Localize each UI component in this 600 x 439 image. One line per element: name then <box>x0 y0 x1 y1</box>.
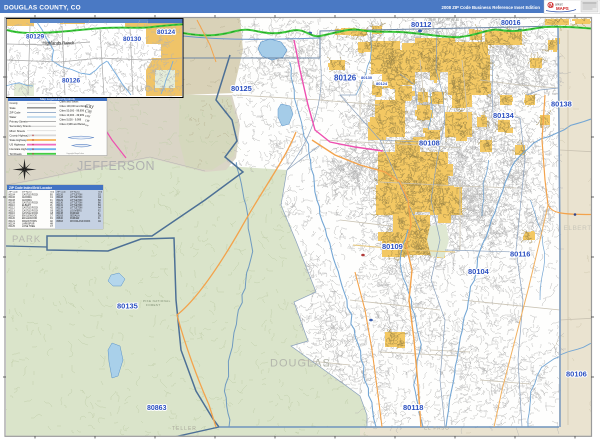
svg-text:City: City <box>85 108 92 113</box>
svg-text:80124: 80124 <box>376 81 388 86</box>
svg-text:Copyright MapsOnline: Copyright MapsOnline <box>66 152 84 155</box>
svg-text:MAPS: MAPS <box>556 6 569 11</box>
svg-text:80116: 80116 <box>510 250 530 259</box>
svg-text:CASTLE ROCK: CASTLE ROCK <box>22 194 39 197</box>
svg-text:City: City <box>85 124 89 127</box>
svg-text:Cities 10,000 - 49,999: Cities 10,000 - 49,999 <box>60 114 85 117</box>
svg-text:PARK: PARK <box>12 234 41 245</box>
svg-text:SEDALIA: SEDALIA <box>70 215 80 218</box>
svg-text:ZIP Name: ZIP Name <box>22 192 33 194</box>
svg-text:80108: 80108 <box>419 139 440 148</box>
svg-text:CASTLE ROCK: CASTLE ROCK <box>22 202 39 205</box>
svg-text:CASTLE ROCK: CASTLE ROCK <box>22 207 39 210</box>
svg-text:Toll Roads: Toll Roads <box>10 152 23 156</box>
svg-text:FRANKTOWN: FRANKTOWN <box>22 220 37 223</box>
svg-text:EL PASO: EL PASO <box>424 426 450 432</box>
svg-text:State Highways: State Highways <box>10 138 29 142</box>
svg-text:80126: 80126 <box>62 78 80 85</box>
svg-text:80129: 80129 <box>26 34 44 41</box>
svg-text:80130: 80130 <box>361 75 373 80</box>
svg-text:City: City <box>85 119 90 122</box>
svg-text:DOUGLAS: DOUGLAS <box>119 84 176 94</box>
svg-text:TELLER: TELLER <box>172 426 197 432</box>
svg-text:DOUGLAS COUNTY, CO: DOUGLAS COUNTY, CO <box>4 5 81 12</box>
svg-text:E..: E.. <box>98 213 101 215</box>
svg-text:80016: 80016 <box>501 20 521 27</box>
svg-text:80108: 80108 <box>9 200 16 202</box>
svg-text:ELBERT: ELBERT <box>564 225 592 232</box>
svg-text:80104: 80104 <box>468 267 490 276</box>
svg-text:ZIP Code: ZIP Code <box>10 110 21 114</box>
svg-text:ZIP Code: ZIP Code <box>57 192 67 194</box>
svg-text:JEFFERSON: JEFFERSON <box>77 159 155 173</box>
svg-text:80130: 80130 <box>123 36 141 43</box>
svg-text:ZIP Name: ZIP Name <box>70 192 81 194</box>
svg-text:80124: 80124 <box>157 29 175 36</box>
svg-text:80125: 80125 <box>231 84 252 93</box>
svg-text:Cities and Towns: Cities and Towns <box>60 101 80 104</box>
svg-text:Cities 50,000 - 99,999: Cities 50,000 - 99,999 <box>60 110 85 113</box>
svg-text:Water: Water <box>10 115 17 119</box>
svg-text:City: City <box>85 114 91 118</box>
svg-text:80863: 80863 <box>147 405 167 412</box>
svg-text:ZIP Code Index/Grid Locator: ZIP Code Index/Grid Locator <box>9 186 53 190</box>
svg-text:Cities 2,999 and Below: Cities 2,999 and Below <box>60 123 86 126</box>
svg-text:LITTLETON: LITTLETON <box>70 200 83 202</box>
svg-text:80138: 80138 <box>57 213 64 215</box>
svg-text:80118: 80118 <box>403 403 423 412</box>
svg-text:DOUGLAS: DOUGLAS <box>270 358 331 370</box>
svg-text:PARKER: PARKER <box>70 217 80 220</box>
svg-text:80126: 80126 <box>334 74 357 83</box>
svg-text:AURORA: AURORA <box>22 196 32 199</box>
svg-text:80135: 80135 <box>117 302 138 311</box>
svg-text:FOREST: FOREST <box>146 303 161 307</box>
svg-text:80106: 80106 <box>566 370 587 379</box>
svg-text:80134: 80134 <box>493 111 515 120</box>
svg-text:PARKER: PARKER <box>70 212 80 215</box>
svg-text:County: County <box>10 101 19 105</box>
svg-text:Highlands Ranch: Highlands Ranch <box>43 41 76 46</box>
svg-text:Primary Streets: Primary Streets <box>10 120 29 124</box>
svg-text:80863: 80863 <box>57 221 64 223</box>
svg-text:CASTLE ROCK: CASTLE ROCK <box>22 209 39 212</box>
svg-text:US Highways: US Highways <box>10 143 26 147</box>
svg-text:2008 ZIP Code Business Referen: 2008 ZIP Code Business Reference Inset E… <box>441 5 540 10</box>
svg-text:State: State <box>10 106 17 110</box>
svg-text:LARKSPUR: LARKSPUR <box>22 222 35 225</box>
svg-text:80125: 80125 <box>9 226 16 228</box>
svg-text:LONE TREE: LONE TREE <box>22 226 35 228</box>
svg-text:80116: 80116 <box>9 213 16 215</box>
svg-text:Cities 5,000 - 9,999: Cities 5,000 - 9,999 <box>60 119 82 122</box>
svg-text:ZIP Code: ZIP Code <box>9 192 19 194</box>
svg-text:WOODLAND PARK: WOODLAND PARK <box>70 220 91 223</box>
svg-text:80138: 80138 <box>551 100 572 109</box>
svg-text:M: M <box>549 4 554 10</box>
svg-text:CASTLE ROCK: CASTLE ROCK <box>22 212 39 215</box>
svg-text:AURORA: AURORA <box>22 199 32 202</box>
svg-text:80129: 80129 <box>57 200 64 202</box>
svg-text:80109: 80109 <box>382 242 403 251</box>
svg-text:Minor Streets: Minor Streets <box>10 129 26 133</box>
